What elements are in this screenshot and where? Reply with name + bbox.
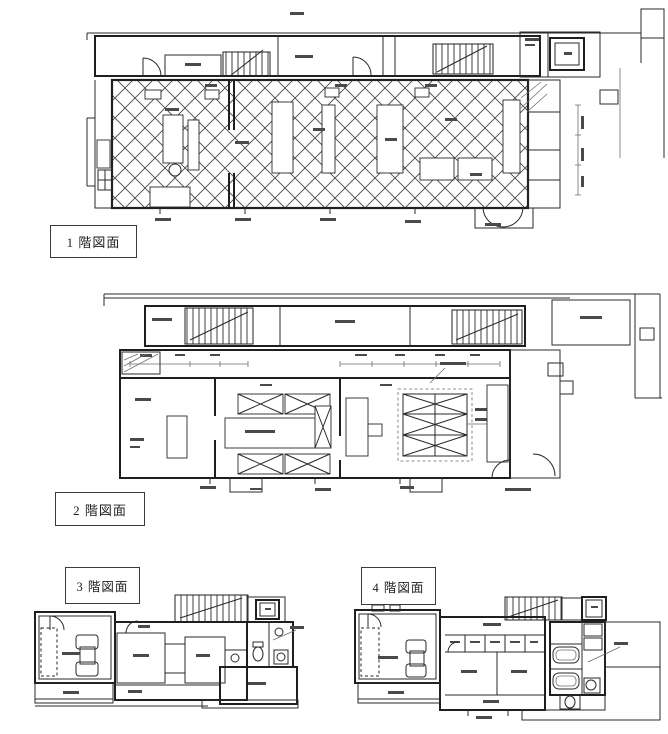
floor2-caption-label: 2 階図面 xyxy=(73,500,127,519)
floor3-caption-label: 3 階図面 xyxy=(77,576,129,595)
floor1-caption-label: 1 階図面 xyxy=(67,232,121,251)
floor3-plan-drawing xyxy=(28,592,308,727)
floor2-plan-drawing xyxy=(100,288,668,500)
floor-plan-document: 1 階図面 xyxy=(0,0,668,734)
floor1-plan-drawing xyxy=(85,8,668,230)
floor4-caption-label: 4 階図面 xyxy=(373,577,425,596)
floor4-plan-drawing xyxy=(348,592,666,730)
floor4-caption-box: 4 階図面 xyxy=(361,567,436,605)
floor2-caption-box: 2 階図面 xyxy=(55,492,145,526)
floor3-caption-box: 3 階図面 xyxy=(65,567,140,604)
floor1-caption-box: 1 階図面 xyxy=(50,225,137,258)
